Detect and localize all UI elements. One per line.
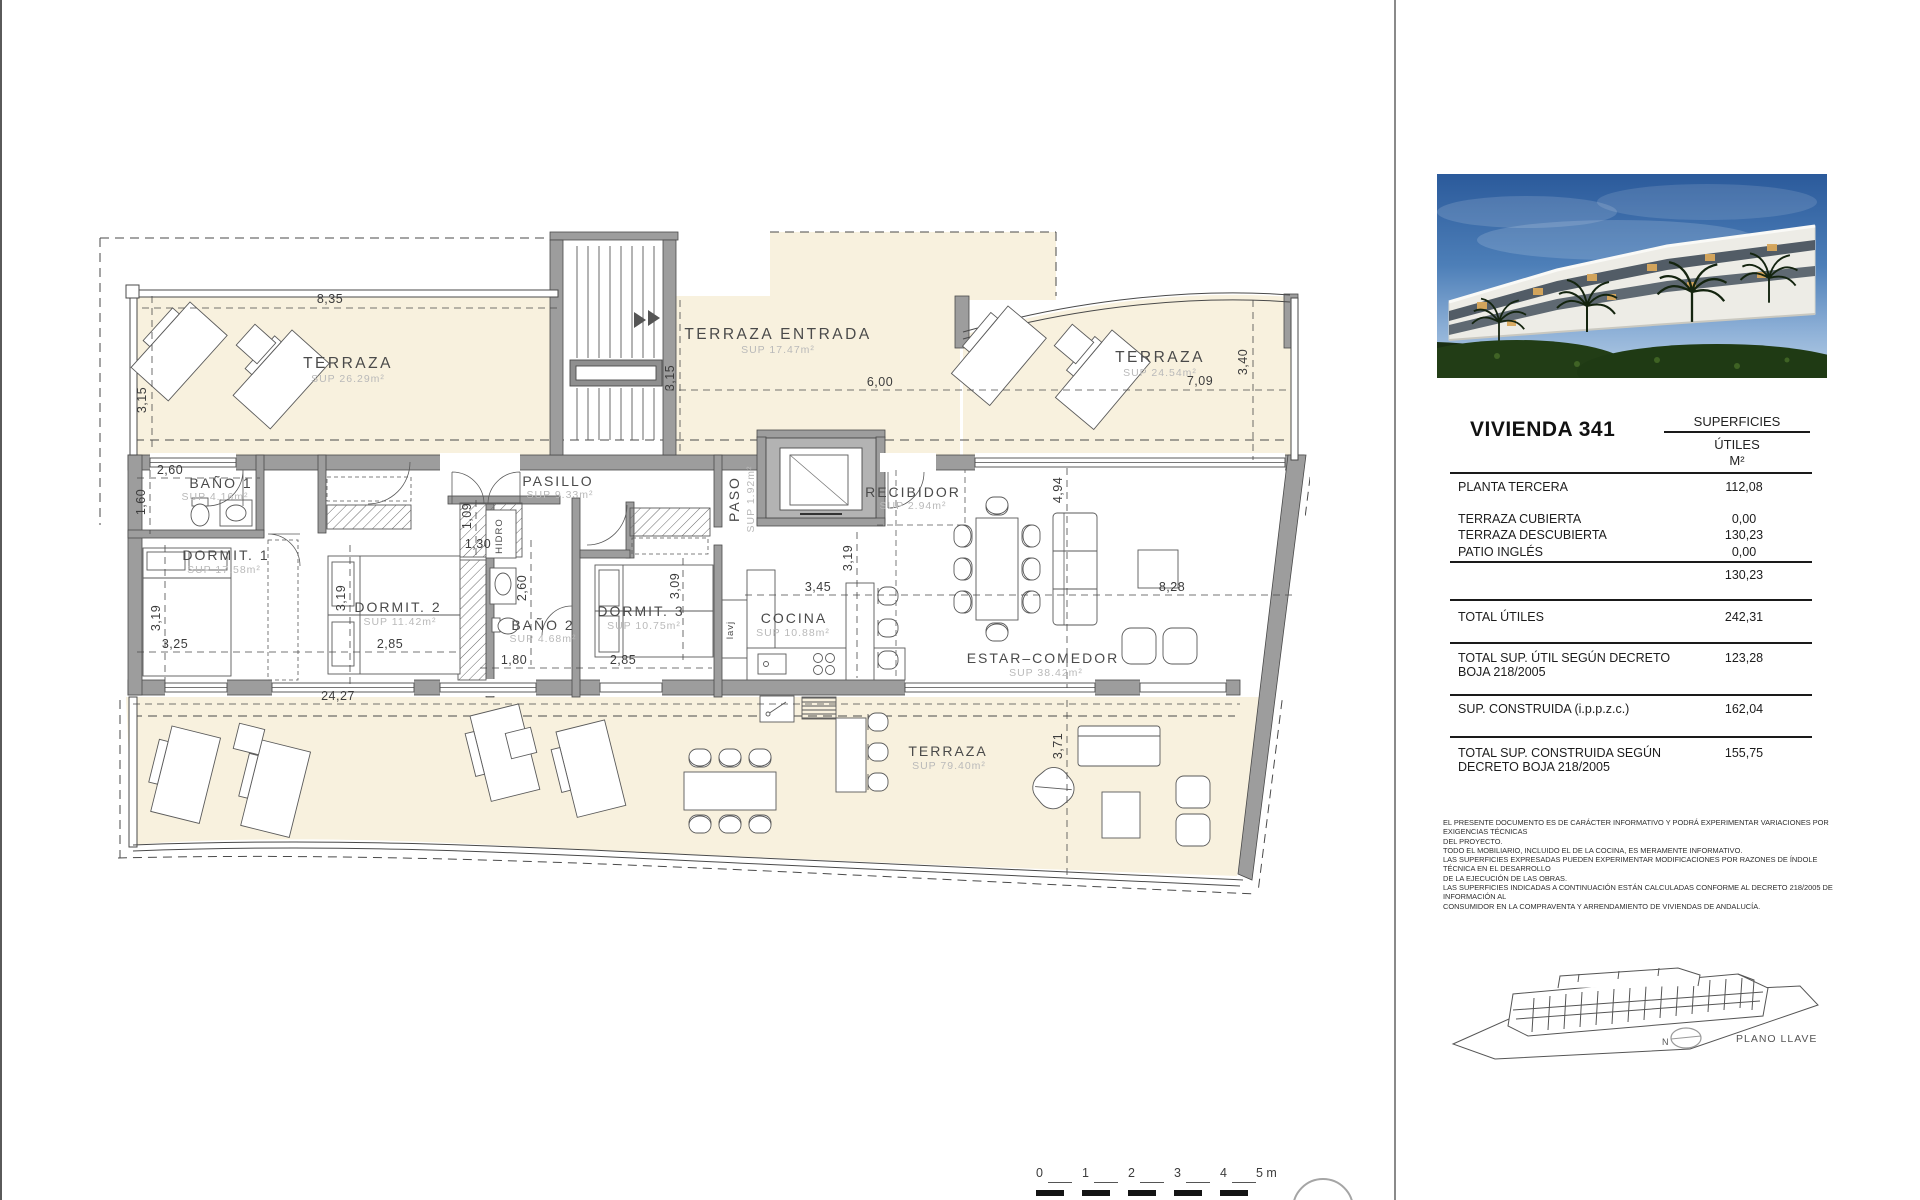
svg-text:RECIBIDOR: RECIBIDOR xyxy=(865,484,961,500)
stairs xyxy=(570,246,662,440)
svg-text:8,35: 8,35 xyxy=(317,292,343,306)
svg-text:SUP 17.58m²: SUP 17.58m² xyxy=(187,564,261,576)
svg-text:ESTAR–COMEDOR: ESTAR–COMEDOR xyxy=(967,650,1120,666)
table-rule xyxy=(1450,642,1812,644)
svg-text:SUP 10.88m²: SUP 10.88m² xyxy=(756,627,830,639)
svg-text:HIDRO: HIDRO xyxy=(494,518,505,554)
svg-text:TERRAZA ENTRADA: TERRAZA ENTRADA xyxy=(684,326,871,343)
table-header-m2: M² xyxy=(1662,453,1812,468)
scale-bar: 0 1 2 3 4 5 m xyxy=(1028,1166,1298,1200)
svg-text:2,85: 2,85 xyxy=(377,637,403,651)
svg-text:SUP 1.92m²: SUP 1.92m² xyxy=(745,466,757,533)
svg-text:3,25: 3,25 xyxy=(162,637,188,651)
svg-text:8,28: 8,28 xyxy=(1159,580,1185,594)
table-rule xyxy=(1450,472,1812,474)
svg-text:PASILLO: PASILLO xyxy=(522,473,593,489)
scale-tick: 5 m xyxy=(1256,1166,1277,1180)
disclaimer-line: EL PRESENTE DOCUMENTO ES DE CARÁCTER INF… xyxy=(1443,818,1835,837)
table-row-value: 130,23 xyxy=(1688,568,1800,582)
svg-text:SUP 17.47m²: SUP 17.47m² xyxy=(741,344,815,356)
svg-text:DORMIT. 2: DORMIT. 2 xyxy=(354,599,441,615)
disclaimer-line: LAS SUPERFICIES INDICADAS A CONTINUACIÓN… xyxy=(1443,883,1835,902)
svg-text:3,15: 3,15 xyxy=(135,387,149,413)
beds-dormit2 xyxy=(328,556,460,674)
legal-disclaimer: EL PRESENTE DOCUMENTO ES DE CARÁCTER INF… xyxy=(1443,818,1835,911)
floorplan-drawing: 8,35 3,15 2,60 1,60 3,19 3,25 3,19 2,85 … xyxy=(95,215,1310,975)
svg-text:3,15: 3,15 xyxy=(663,365,677,391)
svg-text:6,00: 6,00 xyxy=(867,375,893,389)
header-rule xyxy=(1664,431,1810,433)
svg-text:SUP 26.29m²: SUP 26.29m² xyxy=(311,373,385,385)
table-row-value: 130,23 xyxy=(1688,528,1800,542)
table-row-value: 0,00 xyxy=(1688,512,1800,526)
svg-text:2,60: 2,60 xyxy=(515,575,529,601)
scale-tick: 1 xyxy=(1082,1166,1089,1180)
table-row-value: 242,31 xyxy=(1688,610,1800,624)
table-rule xyxy=(1450,736,1812,738)
keyplan-label: PLANO LLAVE xyxy=(1736,1033,1817,1045)
table-row-value: 112,08 xyxy=(1688,480,1800,494)
svg-text:SUP 79.40m²: SUP 79.40m² xyxy=(912,760,986,772)
svg-text:SUP 9.33m²: SUP 9.33m² xyxy=(527,489,594,501)
svg-text:SUP 2.94m²: SUP 2.94m² xyxy=(880,500,947,512)
outdoor-dining xyxy=(684,749,776,833)
table-row-value: 0,00 xyxy=(1688,545,1800,559)
table-header-superficies: SUPERFICIES xyxy=(1662,414,1812,429)
svg-text:3,19: 3,19 xyxy=(841,545,855,571)
svg-text:SUP 38.42m²: SUP 38.42m² xyxy=(1009,667,1083,679)
svg-text:lavj: lavj xyxy=(725,621,736,639)
table-row-label: TOTAL ÚTILES xyxy=(1458,610,1686,624)
svg-text:SUP 11.42m²: SUP 11.42m² xyxy=(363,616,436,628)
svg-text:1,30: 1,30 xyxy=(465,537,491,551)
svg-text:SUP 4.16m²: SUP 4.16m² xyxy=(182,491,249,503)
svg-text:SUP 10.75m²: SUP 10.75m² xyxy=(607,620,681,632)
table-row-label: SUP. CONSTRUIDA (i.p.p.z.c.) xyxy=(1458,702,1686,716)
svg-text:3,45: 3,45 xyxy=(805,580,831,594)
table-row-label: PLANTA TERCERA xyxy=(1458,480,1686,494)
disclaimer-line: CONSUMIDOR EN LA COMPRAVENTA Y ARRENDAMI… xyxy=(1443,902,1835,911)
svg-text:3,19: 3,19 xyxy=(334,585,348,611)
svg-text:COCINA: COCINA xyxy=(761,610,827,626)
svg-text:3,71: 3,71 xyxy=(1051,733,1065,759)
table-rule xyxy=(1450,694,1812,696)
table-row-label: TERRAZA CUBIERTA xyxy=(1458,512,1686,526)
svg-text:4,94: 4,94 xyxy=(1051,477,1065,503)
svg-text:TERRAZA: TERRAZA xyxy=(303,355,393,372)
surface-table: VIVIENDA 341 SUPERFICIES ÚTILES M² PLANT… xyxy=(1450,408,1816,808)
table-row-label: TOTAL SUP. ÚTIL SEGÚN DECRETO BOJA 218/2… xyxy=(1458,651,1686,679)
svg-text:SUP 24.54m²: SUP 24.54m² xyxy=(1123,367,1197,379)
disclaimer-line: DEL PROYECTO. xyxy=(1443,837,1835,846)
table-row-label: PATIO INGLÉS xyxy=(1458,545,1686,559)
plan-sheet: 8,35 3,15 2,60 1,60 3,19 3,25 3,19 2,85 … xyxy=(0,0,1920,1200)
table-row-value: 155,75 xyxy=(1688,746,1800,760)
north-label: N xyxy=(1662,1037,1669,1047)
svg-text:3,40: 3,40 xyxy=(1236,349,1250,375)
scale-bar-circle xyxy=(1292,1178,1354,1200)
svg-text:1,80: 1,80 xyxy=(501,653,527,667)
north-compass: N xyxy=(1662,1028,1701,1048)
svg-text:1,09: 1,09 xyxy=(460,503,474,529)
table-row-value: 162,04 xyxy=(1688,702,1800,716)
svg-text:3,19: 3,19 xyxy=(149,605,163,631)
svg-text:2,60: 2,60 xyxy=(157,463,183,477)
disclaimer-line: DE LA EJECUCIÓN DE LAS OBRAS. xyxy=(1443,874,1835,883)
building-render-photo xyxy=(1437,174,1827,378)
svg-text:BAÑO 1: BAÑO 1 xyxy=(189,475,252,491)
elevator xyxy=(766,438,876,518)
scale-tick: 4 xyxy=(1220,1166,1227,1180)
sheet-left-border xyxy=(0,0,2,1200)
scale-tick: 3 xyxy=(1174,1166,1181,1180)
scale-tick: 2 xyxy=(1128,1166,1135,1180)
svg-text:TERRAZA: TERRAZA xyxy=(908,743,987,759)
svg-text:DORMIT. 1: DORMIT. 1 xyxy=(182,547,269,563)
table-rule xyxy=(1450,561,1812,563)
svg-text:DORMIT. 3: DORMIT. 3 xyxy=(597,603,684,619)
table-rule xyxy=(1450,599,1812,601)
svg-text:PASO: PASO xyxy=(726,476,742,522)
key-plan: N PLANO LLAVE xyxy=(1438,948,1830,1070)
svg-text:TERRAZA: TERRAZA xyxy=(1115,349,1205,366)
table-row-value: 123,28 xyxy=(1688,651,1800,665)
svg-text:SUP 4.68m²: SUP 4.68m² xyxy=(510,633,577,645)
scale-tick: 0 xyxy=(1036,1166,1043,1180)
svg-text:3,09: 3,09 xyxy=(668,573,682,599)
unit-title: VIVIENDA 341 xyxy=(1470,418,1615,442)
table-row-label: TERRAZA DESCUBIERTA xyxy=(1458,528,1686,542)
svg-text:2,85: 2,85 xyxy=(610,653,636,667)
table-row-label: TOTAL SUP. CONSTRUIDA SEGÚN DECRETO BOJA… xyxy=(1458,746,1686,774)
svg-text:1,60: 1,60 xyxy=(134,489,148,515)
panel-divider-line xyxy=(1394,0,1396,1200)
svg-text:24,27: 24,27 xyxy=(321,689,355,703)
svg-text:BAÑO 2: BAÑO 2 xyxy=(511,617,574,633)
table-header-utiles: ÚTILES xyxy=(1662,437,1812,452)
disclaimer-line: LAS SUPERFICIES EXPRESADAS PUEDEN EXPERI… xyxy=(1443,855,1835,874)
disclaimer-line: TODO EL MOBILIARIO, INCLUIDO EL DE LA CO… xyxy=(1443,846,1835,855)
